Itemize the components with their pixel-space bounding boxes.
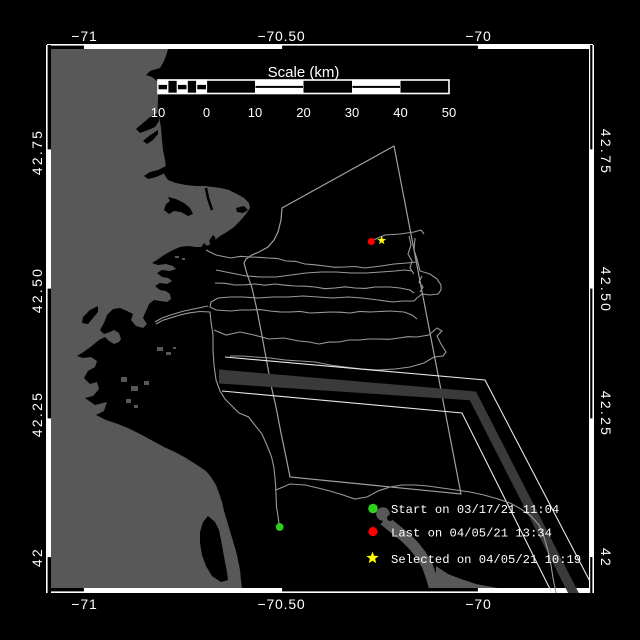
- svg-text:10: 10: [248, 105, 262, 120]
- svg-text:−70.50: −70.50: [257, 28, 305, 44]
- svg-text:Selected on 04/05/21 10:19: Selected on 04/05/21 10:19: [391, 553, 581, 567]
- svg-text:Scale (km): Scale (km): [268, 64, 340, 81]
- svg-text:42.25: 42.25: [598, 391, 614, 438]
- svg-text:20: 20: [296, 105, 310, 120]
- svg-text:50: 50: [442, 105, 456, 120]
- svg-text:42.25: 42.25: [29, 391, 45, 438]
- svg-text:40: 40: [393, 105, 407, 120]
- svg-text:Start on 03/17/21 11:04: Start on 03/17/21 11:04: [391, 503, 559, 517]
- svg-text:0: 0: [203, 105, 210, 120]
- svg-text:−71: −71: [71, 596, 97, 612]
- svg-text:42.50: 42.50: [29, 267, 45, 314]
- svg-text:42: 42: [29, 547, 45, 567]
- svg-text:42.50: 42.50: [598, 267, 614, 314]
- svg-text:−71: −71: [71, 28, 97, 44]
- svg-text:Last on 04/05/21 13:34: Last on 04/05/21 13:34: [391, 527, 552, 541]
- svg-text:42.75: 42.75: [29, 129, 45, 176]
- svg-text:42.75: 42.75: [598, 129, 614, 176]
- svg-text:−70.50: −70.50: [257, 596, 305, 612]
- svg-text:10: 10: [151, 105, 165, 120]
- svg-text:−70: −70: [465, 28, 491, 44]
- svg-text:30: 30: [345, 105, 359, 120]
- svg-text:−70: −70: [465, 596, 491, 612]
- svg-text:42: 42: [598, 548, 614, 568]
